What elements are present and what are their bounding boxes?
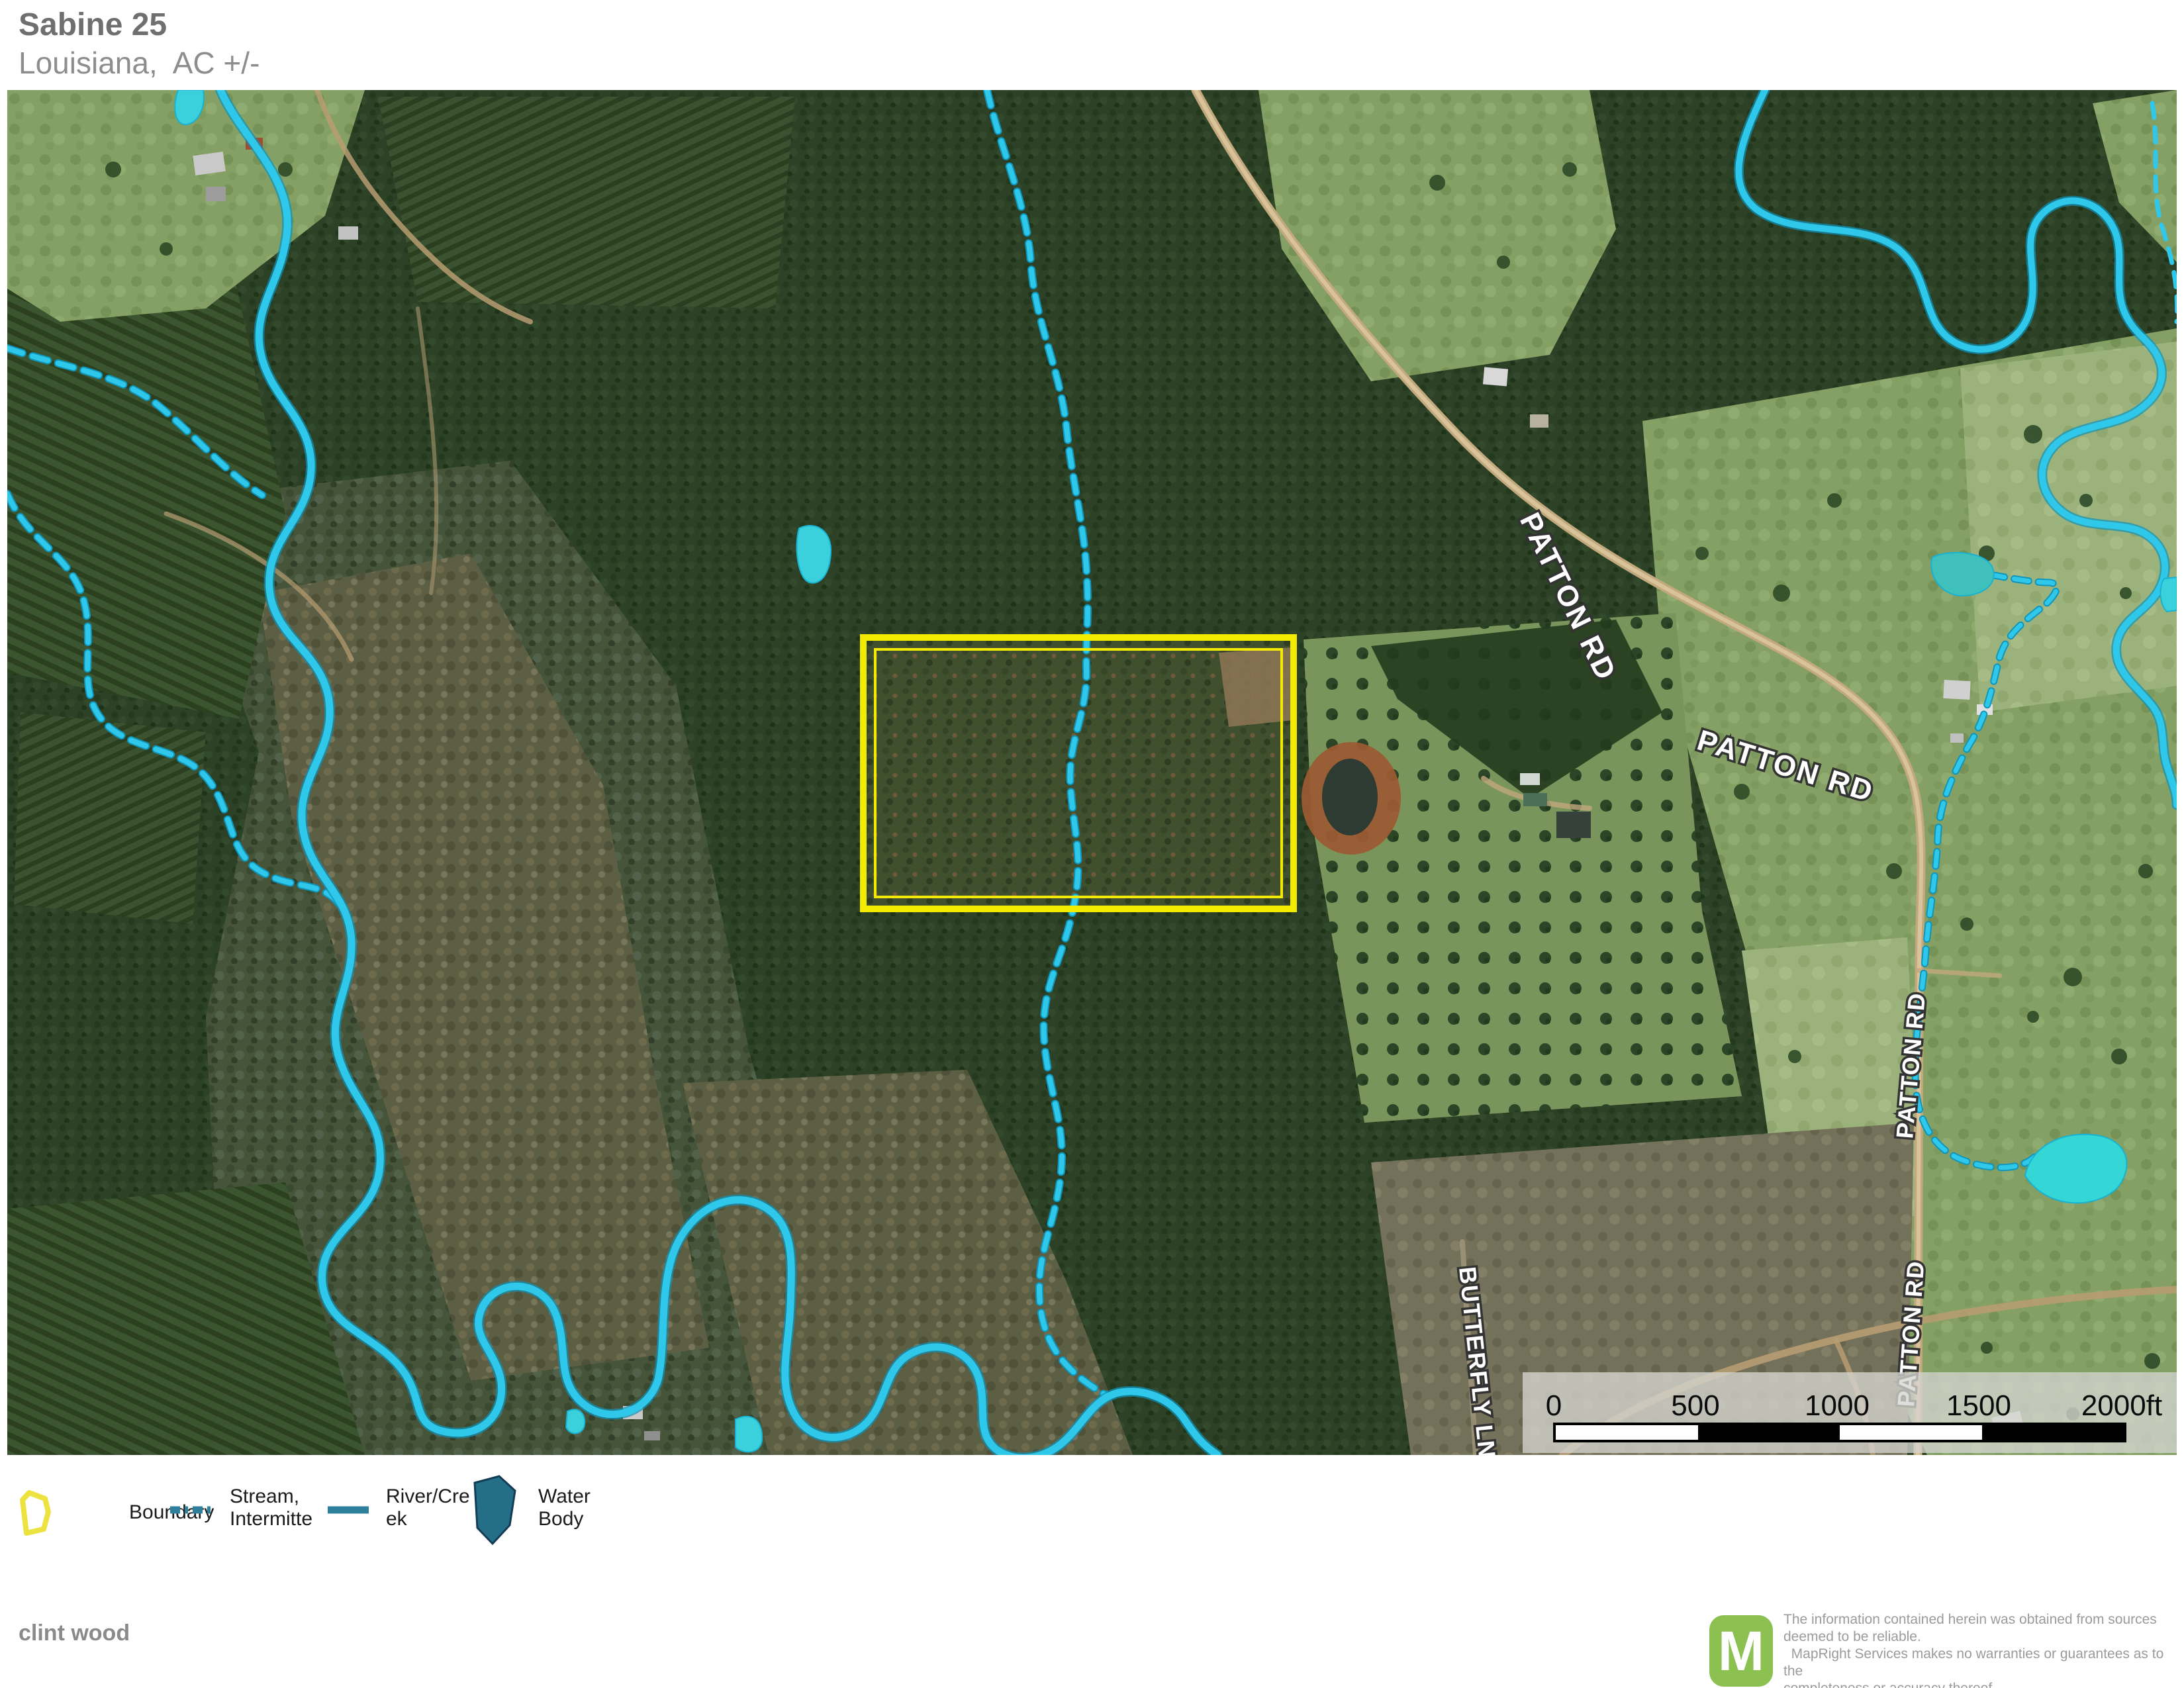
page-title: Sabine 25 xyxy=(19,7,167,43)
page-subtitle: Louisiana, AC +/- xyxy=(19,45,260,81)
aerial-basemap: PATTON RD PATTON RD PATTON RD PATTON RD … xyxy=(7,90,2177,1455)
legend-river-icon xyxy=(326,1503,370,1517)
pale-grass xyxy=(1960,342,2177,712)
farm-pond xyxy=(1322,759,1378,835)
legend-label-river: ek xyxy=(386,1508,470,1530)
mapright-logo: M xyxy=(1709,1615,1773,1687)
prepared-by: clint wood xyxy=(19,1620,130,1646)
scale-tick: 2000ft xyxy=(2081,1389,2162,1423)
legend-label-water: Water xyxy=(538,1485,591,1508)
scale-bar: 0 500 1000 1500 2000ft xyxy=(1523,1372,2177,1453)
aerial-map-canvas: PATTON RD PATTON RD PATTON RD PATTON RD … xyxy=(7,90,2177,1455)
legend-water-body-icon xyxy=(471,1475,519,1546)
legend-label-stream: Stream, xyxy=(230,1485,312,1508)
legend-label-river: River/Cre xyxy=(386,1485,470,1508)
legend-stream-icon xyxy=(169,1503,215,1517)
pine-plantation xyxy=(14,712,206,924)
map-export-page: Sabine 25 Louisiana, AC +/- xyxy=(0,0,2184,1688)
scale-tick: 0 xyxy=(1546,1389,1562,1423)
legend-label-water: Body xyxy=(538,1508,591,1530)
disclaimer-line: completeness or accuracy thereof. xyxy=(1783,1680,2174,1688)
scale-tick: 500 xyxy=(1671,1389,1719,1423)
disclaimer-line: deemed to be reliable. xyxy=(1783,1628,2174,1646)
pine-plantation xyxy=(378,97,795,308)
legend-label-stream: Intermitte xyxy=(230,1508,312,1530)
disclaimer-line: MapRight Services makes no warranties or… xyxy=(1783,1646,2174,1680)
scale-tick: 1500 xyxy=(1946,1389,2011,1423)
scale-tick: 1000 xyxy=(1805,1389,1870,1423)
disclaimer-line: The information contained herein was obt… xyxy=(1783,1611,2174,1628)
disclaimer-text: The information contained herein was obt… xyxy=(1783,1611,2174,1688)
legend-boundary-icon xyxy=(19,1487,61,1538)
scale-bar-segments xyxy=(1553,1423,2126,1442)
